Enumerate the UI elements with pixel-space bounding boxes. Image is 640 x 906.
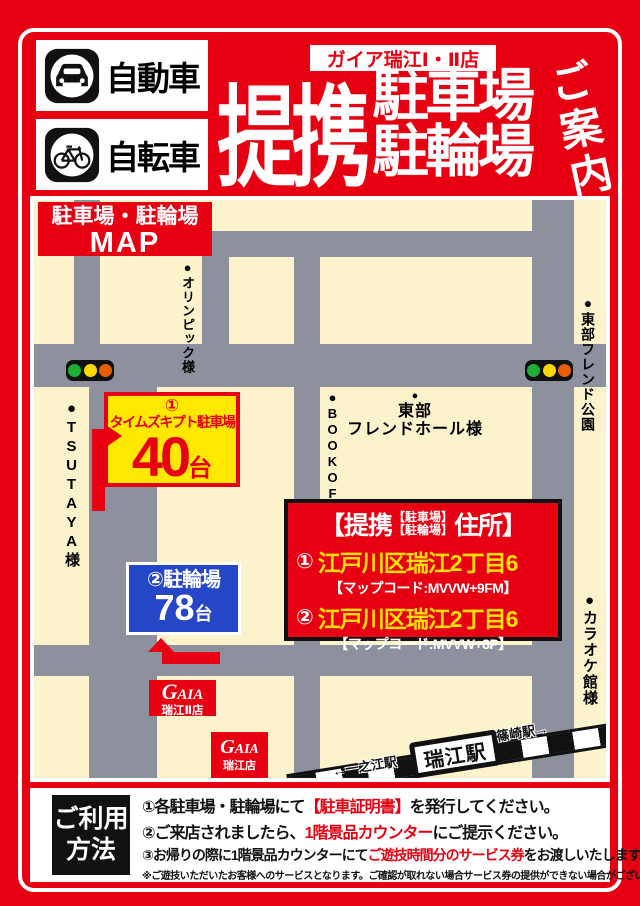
gaia-store-2-sign: GAIA 瑞江Ⅱ店 [149, 680, 216, 716]
parking-arrow-icon [106, 425, 122, 447]
road-right-vertical [532, 200, 574, 778]
bicycle-capacity-unit: 台 [195, 604, 213, 624]
address-item-2-text: 江戸川区瑞江2丁目6 [318, 600, 518, 634]
car-row: 自動車 [36, 40, 208, 111]
address-item-1-mapcode: 【マップコード:MVVW+9FM】 [294, 578, 552, 598]
map-title: 駐車場・駐輪場 MAP [38, 202, 212, 256]
road-top-horizontal [211, 231, 574, 257]
landmark-tobu-friend-park: ●東部フレンド公園 [581, 295, 595, 432]
bicycle-capacity: 78 [154, 587, 194, 628]
how-to-use-title: ご利用 方法 [52, 795, 130, 875]
title-line2: 駐輪場 [372, 120, 531, 184]
address-header-small: 【駐車場】 【駐輪場】 [393, 511, 453, 537]
landmark-karaoke: ●カラオケ館様 [582, 592, 597, 706]
parking-capacity-unit: 台 [188, 455, 212, 482]
address-item-1: ① 江戸川区瑞江2丁目6 [294, 544, 552, 578]
address-header-small1: 【駐車場】 [393, 510, 453, 524]
bicycle-capacity-box: ②駐輪場 78台 [126, 562, 241, 635]
traffic-light-right-icon [525, 360, 573, 381]
title-teikei: 提携 [206, 84, 376, 194]
bicycle-label: 自転車 [106, 131, 199, 179]
address-item-2-num: ② [296, 605, 314, 630]
instruction-step-2: ②ご来店されましたら、1階景品カウンターにご提示ください。 [142, 819, 567, 843]
bicycle-icon [44, 127, 100, 183]
parking-number: ① [108, 397, 236, 414]
step-3-highlight: ご遊技時間分のサービス券 [368, 847, 524, 863]
landmark-tobu-hall-line2: フレンドホール様 [334, 421, 496, 439]
station-sign: 瑞江駅 [409, 729, 502, 778]
title-line1: 駐車場 [372, 64, 531, 128]
instruction-note: ※ご遊技いただいたお客様へのサービスとなります。ご確認が取れない場合サービス券の… [142, 867, 640, 882]
traffic-light-left-icon [66, 360, 114, 381]
gaia-store-2-name: 瑞江Ⅱ店 [149, 706, 216, 718]
how-to-use-title-line1: ご利用 [52, 804, 130, 835]
bicycle-arrow-bar [162, 652, 220, 664]
address-item-1-num: ① [296, 549, 314, 574]
address-item-1-text: 江戸川区瑞江2丁目6 [318, 544, 518, 578]
address-box-header: 【提携 【駐車場】 【駐輪場】 住所】 [294, 506, 552, 542]
parking-capacity-box: ① タイムズキプト駐車場 40台 [104, 392, 240, 487]
parking-arrow-bar [92, 431, 105, 511]
car-icon [44, 48, 100, 104]
instruction-step-1: ①各駐車場・駐輪場にて【駐車証明書】を発行してください。 [142, 793, 559, 817]
title-parking: 駐車場駐輪場 [372, 68, 531, 181]
how-to-use-section: ご利用 方法 ①各駐車場・駐輪場にて【駐車証明書】を発行してください。 ②ご来店… [30, 788, 610, 882]
gaia-store-1-sign: GAIA 瑞江店 [211, 732, 268, 779]
step-1-highlight: 【駐車証明書】 [305, 799, 410, 816]
address-item-2: ② 江戸川区瑞江2丁目6 [294, 600, 552, 634]
map-title-line1: 駐車場・駐輪場 [38, 205, 212, 228]
gaia-logo: GAIA [211, 737, 268, 757]
parking-flyer: 自動車 自転車 ガイア瑞江Ⅰ・Ⅱ店 提携 駐車場駐輪場 ご案内 駐車場 [0, 0, 640, 906]
map-title-line2: MAP [38, 228, 212, 260]
bicycle-row: 自転車 [36, 119, 208, 190]
instruction-step-3: ③お帰りの際に1階景品カウンターにてご遊技時間分のサービス券をお渡しいたします。 [142, 845, 640, 865]
gaia-logo: GAIA [149, 682, 216, 704]
bicycle-arrow-icon [148, 638, 174, 652]
address-box: 【提携 【駐車場】 【駐輪場】 住所】 ① 江戸川区瑞江2丁目6 【マップコード… [284, 499, 562, 641]
landmark-dot: ● [334, 390, 496, 403]
parking-capacity: 40 [132, 425, 188, 488]
step-2-highlight: 1階景品カウンター [305, 825, 433, 842]
landmark-tobu-hall-line1: 東部 [334, 403, 496, 421]
how-to-use-title-line2: 方法 [52, 835, 130, 866]
car-label: 自動車 [106, 52, 199, 100]
address-header-post: 住所】 [454, 506, 526, 542]
address-header-pre: 【提携 [320, 506, 392, 542]
landmark-tsutaya: ●TSUTAYA様 [64, 400, 79, 569]
address-header-small2: 【駐輪場】 [393, 523, 453, 537]
gaia-store-1-name: 瑞江店 [211, 761, 268, 772]
parking-map: 駐車場・駐輪場 MAP ●TSUTAYA様 ●オリンピック様 ●BOOKOFF様… [30, 196, 610, 782]
landmark-tobu-friend-hall: ● 東部 フレンドホール様 [334, 390, 496, 439]
address-item-2-mapcode: 【マップコード:MVVW+8P】 [294, 634, 552, 654]
landmark-olympic: ●オリンピック様 [181, 260, 194, 374]
